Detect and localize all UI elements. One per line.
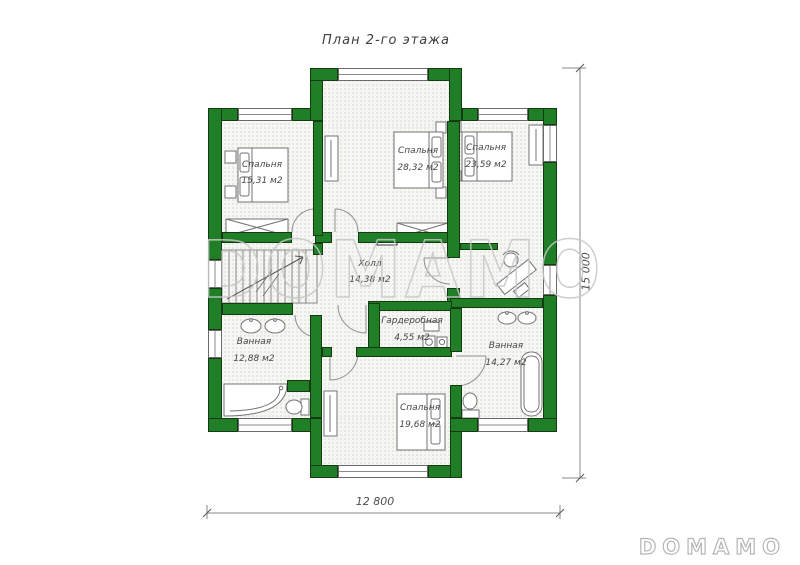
page-title: План 2-го этажа	[276, 33, 496, 48]
room-name-wardrobe: Гардеробная	[374, 316, 450, 326]
wall-segment	[368, 301, 452, 311]
room-name-bathroom-left: Ванная	[222, 337, 286, 347]
wall-segment	[450, 308, 462, 352]
wall-segment	[310, 315, 322, 418]
wall-segment	[208, 418, 238, 432]
wall-segment	[310, 68, 338, 81]
window	[238, 418, 292, 432]
window	[478, 418, 528, 432]
room-area-bedroom-top-right: 23,59 м2	[458, 160, 514, 170]
wall-segment	[528, 418, 557, 432]
window	[338, 68, 428, 81]
floor-plan-page: План 2-го этажа	[0, 0, 800, 565]
window	[208, 260, 222, 288]
wall-segment	[222, 232, 292, 243]
wall-segment	[208, 288, 222, 330]
room-name-bathroom-right: Ванная	[478, 341, 534, 351]
wall-segment	[358, 232, 450, 243]
room-name-hall: Холл	[340, 259, 400, 269]
room-name-bedroom-top-left: Спальня	[224, 160, 300, 170]
room-area-bedroom-bottom: 19,68 м2	[392, 420, 448, 430]
window	[543, 125, 557, 162]
wall-segment	[313, 243, 323, 255]
wall-segment	[450, 418, 478, 432]
room-name-bedroom-top-middle: Спальня	[388, 146, 448, 156]
room-name-bedroom-bottom: Спальня	[394, 403, 446, 413]
room-name-bedroom-top-right: Спальня	[460, 143, 512, 153]
dimension-width-label: 12 800	[320, 495, 430, 508]
wall-segment	[313, 121, 323, 236]
wall-segment	[356, 347, 452, 357]
floor-top-bay	[320, 76, 452, 126]
room-area-wardrobe: 4,55 м2	[374, 333, 450, 343]
window	[478, 108, 528, 121]
room-area-bedroom-top-middle: 28,32 м2	[388, 163, 448, 173]
watermark-logo: DOMAMO	[639, 535, 786, 559]
wall-segment	[208, 108, 222, 260]
wall-segment	[449, 68, 462, 121]
window	[543, 265, 557, 295]
wall-segment	[543, 295, 557, 432]
room-area-bathroom-right: 14,27 м2	[476, 358, 536, 368]
wall-segment	[543, 162, 557, 265]
wall-segment	[447, 121, 460, 258]
wall-segment	[462, 108, 478, 121]
window	[338, 465, 428, 478]
room-area-bathroom-left: 12,88 м2	[220, 354, 288, 364]
wall-segment	[310, 465, 338, 478]
room-area-bedroom-top-left: 15,31 м2	[224, 176, 300, 186]
wall-segment	[543, 108, 557, 125]
window	[238, 108, 292, 121]
wall-segment	[322, 347, 332, 357]
wall-segment	[450, 385, 462, 418]
room-area-hall: 14,38 м2	[338, 275, 402, 285]
wall-segment	[287, 380, 310, 392]
wall-segment	[222, 303, 293, 315]
wall-segment	[450, 298, 543, 308]
dimension-height-label: 15 000	[580, 240, 593, 304]
wall-segment	[460, 243, 498, 250]
